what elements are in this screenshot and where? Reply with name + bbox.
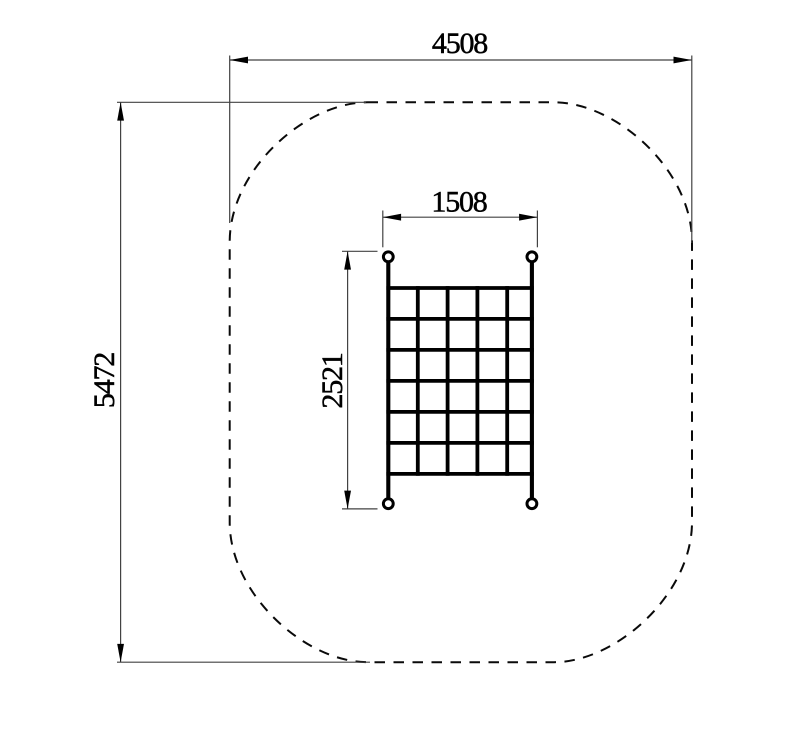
svg-text:4508: 4508: [432, 27, 487, 60]
svg-text:1508: 1508: [431, 185, 486, 218]
svg-text:5472: 5472: [88, 353, 121, 408]
svg-text:2521: 2521: [316, 353, 349, 408]
